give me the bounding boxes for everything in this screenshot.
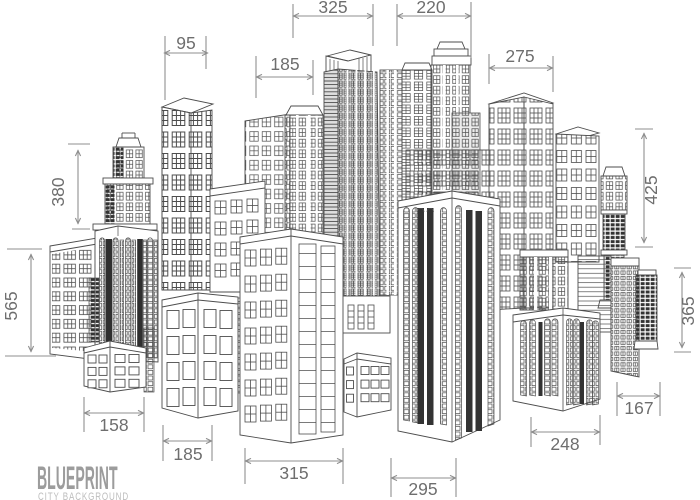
svg-text:220: 220 <box>416 0 445 17</box>
svg-text:275: 275 <box>505 46 534 66</box>
svg-text:365: 365 <box>678 296 698 325</box>
svg-text:325: 325 <box>318 0 347 17</box>
svg-text:315: 315 <box>279 463 308 483</box>
svg-text:185: 185 <box>270 54 299 74</box>
svg-text:425: 425 <box>641 175 661 204</box>
svg-text:380: 380 <box>48 177 68 206</box>
svg-text:167: 167 <box>624 398 653 418</box>
svg-text:158: 158 <box>99 415 128 435</box>
svg-text:248: 248 <box>550 434 579 454</box>
svg-text:95: 95 <box>176 33 195 53</box>
svg-text:295: 295 <box>408 479 437 499</box>
svg-text:185: 185 <box>173 444 202 464</box>
svg-text:CITY BACKGROUND: CITY BACKGROUND <box>38 491 129 500</box>
svg-text:565: 565 <box>1 291 21 320</box>
